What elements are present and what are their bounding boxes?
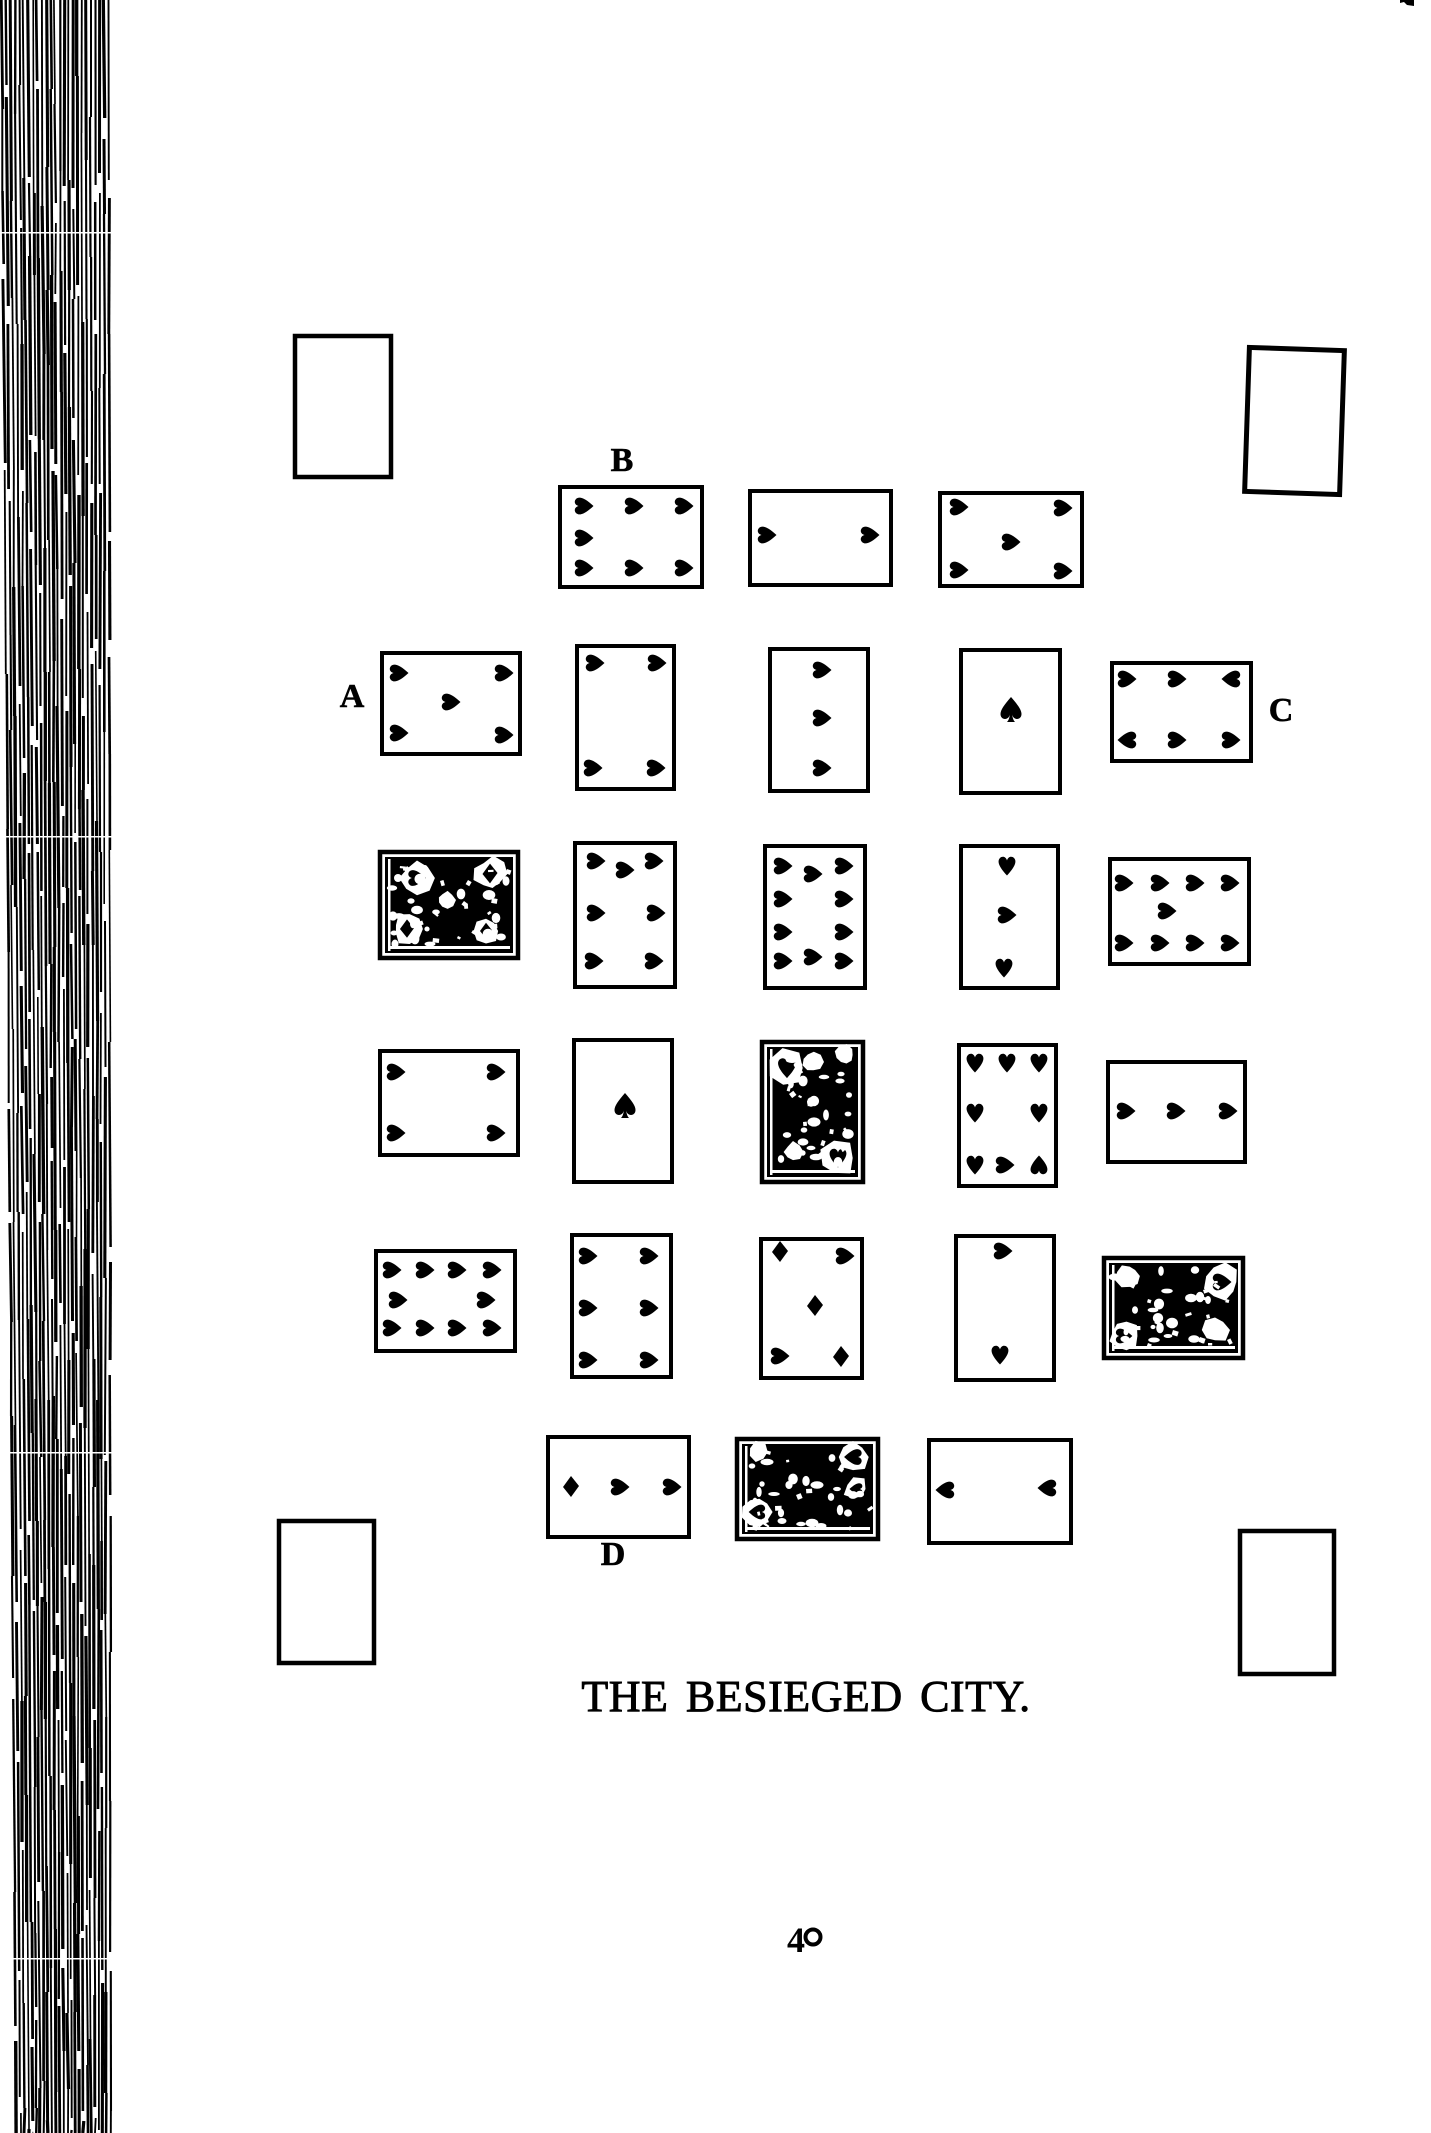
svg-text:THE BESIEGED CITY.: THE BESIEGED CITY. xyxy=(581,1672,1030,1721)
svg-text:4: 4 xyxy=(787,1920,805,1960)
svg-text:B: B xyxy=(611,442,634,479)
svg-text:C: C xyxy=(1269,692,1294,729)
svg-text:A: A xyxy=(340,678,365,715)
svg-text:D: D xyxy=(601,1536,626,1573)
